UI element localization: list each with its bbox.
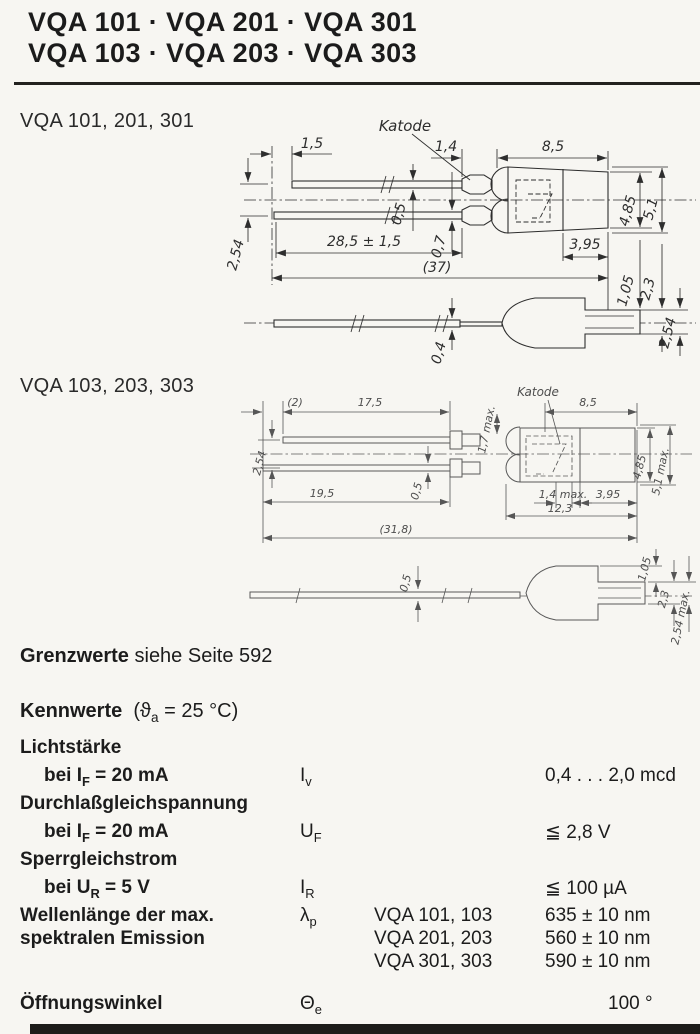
param-condition: bei IF = 20 mA (44, 765, 169, 787)
table-row: Lichtstärke (0, 737, 700, 761)
dim-label: 1,7 max. (475, 404, 498, 454)
dim-label: 0,5 (389, 201, 410, 227)
lens-dome (506, 427, 520, 482)
lower-lead (274, 212, 462, 219)
param-label: spektralen Emission (20, 928, 205, 950)
cond-pre: bei I (44, 765, 82, 786)
dim-label: 1,4 max. (539, 488, 587, 501)
drawing-vqa103-303: Katode (2) 17,5 1,7 max. 8,5 2 (241, 385, 696, 646)
param-value: ≦ 100 µA (545, 877, 627, 900)
extension-lines (252, 401, 696, 604)
dim-label: 1,05 (614, 274, 638, 308)
katode-leader (548, 400, 560, 444)
katode-label: Katode (379, 117, 431, 135)
drawing2-label: VQA 103, 203, 303 (20, 375, 194, 398)
sym-sub: F (314, 830, 322, 845)
chip-outline-dashed (526, 436, 572, 476)
dim-label: 3,95 (569, 237, 600, 253)
dim-label: 3,95 (596, 488, 621, 501)
cond-post: = 5 V (100, 877, 150, 898)
katode-label: Katode (517, 385, 559, 399)
dim-label: 0,5 (397, 573, 414, 593)
dim-label: 2,3 (638, 276, 659, 302)
drawing-vqa101-301: Katode 1,5 1,4 (224, 117, 696, 366)
param-label: Wellenlänge der max. (20, 905, 214, 927)
title-line-2: VQA 103 · VQA 203 · VQA 303 (28, 38, 417, 69)
grenzwerte-bold: Grenzwerte (20, 645, 129, 667)
dim-label: 4,85 (616, 194, 640, 228)
chip-outline-dashed (516, 180, 550, 222)
param-value: ≦ 2,8 V (545, 821, 611, 844)
table-row: bei IF = 20 mA UF ≦ 2,8 V (0, 821, 700, 845)
sym: Θ (300, 993, 315, 1014)
table-row: bei UR = 5 V IR ≦ 100 µA (0, 877, 700, 901)
datasheet-page: Katode 1,5 1,4 (0, 0, 700, 1034)
grenzwerte-line: Grenzwerte siehe Seite 592 (20, 645, 272, 668)
param-value: 590 ± 10 nm (545, 951, 651, 973)
dim-label: 8,5 (542, 139, 564, 155)
lower-lead-anchor (462, 206, 492, 225)
table-row: Wellenlänge der max. λp VQA 101, 103 635… (0, 905, 700, 929)
sym: U (300, 821, 314, 842)
kennwerte-condition: (ϑa = 25 °C) (128, 700, 238, 722)
dim-label: 0,4 (429, 340, 450, 366)
upper-anchor-step1 (450, 431, 462, 449)
side-package-profile (526, 566, 645, 620)
param-symbol: Iv (300, 765, 312, 787)
param-label: Öffnungswinkel (20, 993, 163, 1015)
dim-label: 17,5 (358, 396, 383, 409)
table-row: bei IF = 20 mA Iv 0,4 . . . 2,0 mcd (0, 765, 700, 789)
page-bottom-bar (30, 1024, 700, 1034)
param-condition: bei UR = 5 V (44, 877, 150, 899)
upper-lead-anchor (462, 175, 492, 194)
cond-pre: bei U (44, 877, 90, 898)
lower-lead (263, 465, 450, 471)
dim-label: 2,54 (656, 316, 680, 350)
dim-label: (31,8) (379, 523, 412, 536)
dim-label: 5,1 max. (649, 446, 672, 496)
dim-label: (37) (423, 260, 452, 276)
page-title: VQA 101 · VQA 201 · VQA 301 VQA 103 · VQ… (28, 7, 417, 69)
lower-anchor-step1 (450, 459, 462, 477)
lower-anchor-step2 (462, 462, 480, 474)
kennwerte-bold: Kennwerte (20, 700, 122, 722)
cond-sub: a (151, 710, 159, 725)
dim-label: 12,3 (548, 502, 573, 515)
param-condition: bei IF = 20 mA (44, 821, 169, 843)
title-line-1: VQA 101 · VQA 201 · VQA 301 (28, 7, 417, 38)
device-list: VQA 101, 103 (374, 905, 492, 927)
table-row: spektralen Emission VQA 201, 203 560 ± 1… (0, 928, 700, 952)
param-symbol: IR (300, 877, 315, 899)
param-value: 100 ° (608, 993, 653, 1015)
dim-label: 0,5 (408, 481, 425, 501)
grenzwerte-rest: siehe Seite 592 (129, 645, 272, 667)
upper-lead (292, 181, 462, 188)
cond-post: = 20 mA (90, 765, 169, 786)
dim-label: 2,54 (224, 238, 248, 272)
side-lead (274, 320, 460, 327)
cond-post: = 25 °C) (159, 700, 239, 722)
dim-label: 4,85 (630, 454, 649, 481)
kennwerte-heading: Kennwerte (ϑa = 25 °C) (20, 700, 238, 723)
param-symbol: λp (300, 905, 317, 927)
device-list: VQA 301, 303 (374, 951, 492, 973)
reflector-dashed (532, 444, 566, 474)
param-symbol: UF (300, 821, 322, 843)
cond-sub: F (82, 774, 90, 789)
table-row: Sperrgleichstrom (0, 849, 700, 873)
dim-label: 1,5 (301, 136, 323, 152)
cond-pre: (ϑ (133, 700, 151, 722)
cond-pre: bei I (44, 821, 82, 842)
dim-label: 8,5 (579, 396, 597, 409)
side-pin (460, 322, 502, 326)
param-symbol: Θe (300, 993, 322, 1015)
param-value: 0,4 . . . 2,0 mcd (545, 765, 676, 787)
cond-sub: F (82, 830, 90, 845)
param-label: Lichtstärke (20, 737, 121, 759)
header-rule (14, 82, 700, 85)
device-list: VQA 201, 203 (374, 928, 492, 950)
sym-sub: e (315, 1002, 322, 1017)
param-label: Durchlaßgleichspannung (20, 793, 248, 815)
cond-sub: R (90, 886, 99, 901)
side-lead (250, 592, 520, 598)
upper-lead (283, 437, 450, 443)
dim-label: (2) (287, 396, 303, 409)
param-value: 560 ± 10 nm (545, 928, 651, 950)
sym-sub: R (305, 886, 314, 901)
dim-label: 1,4 (435, 139, 457, 155)
reflector-dashed (528, 194, 552, 218)
dim-label: 0,7 (429, 234, 450, 260)
sym-sub: v (305, 774, 311, 789)
table-row: VQA 301, 303 590 ± 10 nm (0, 951, 700, 975)
cond-post: = 20 mA (90, 821, 169, 842)
drawing1-label: VQA 101, 201, 301 (20, 110, 194, 133)
sym-sub: p (310, 914, 317, 929)
dim-label: 2,3 (655, 589, 672, 609)
table-row: Öffnungswinkel Θe 100 ° (0, 993, 700, 1017)
dim-label: 1,05 (635, 556, 654, 583)
dim-label: 28,5 ± 1,5 (327, 234, 401, 250)
param-label: Sperrgleichstrom (20, 849, 177, 871)
dim-label: 19,5 (310, 487, 335, 500)
sym: λ (300, 905, 310, 926)
param-value: 635 ± 10 nm (545, 905, 651, 927)
table-row: Durchlaßgleichspannung (0, 793, 700, 817)
